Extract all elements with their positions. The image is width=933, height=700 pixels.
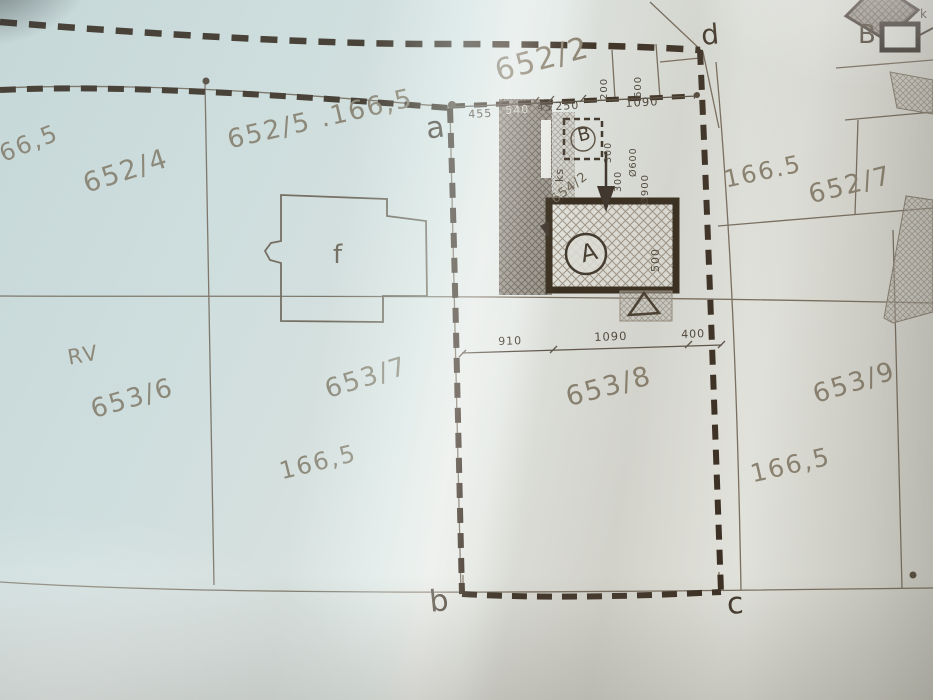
dim-1090-top: 1090 <box>625 96 659 109</box>
legend-b-box <box>882 24 918 50</box>
road-boundary-dashed <box>0 22 700 108</box>
dim-300-b: 300 <box>614 171 624 192</box>
d-connector <box>660 58 700 62</box>
dim-910: 910 <box>498 335 522 347</box>
annotation-ks: ks <box>554 168 565 182</box>
dim-600-dia: Ø600 <box>629 147 639 177</box>
hatch-parallelogram-small <box>890 72 933 114</box>
dim-540: 540 <box>505 104 530 116</box>
topright-line-1 <box>836 60 933 68</box>
dim-455: 455 <box>468 108 493 120</box>
corner-label-a: a <box>424 112 448 145</box>
dim-200: 200 <box>600 78 610 100</box>
dim-500: 500 <box>650 248 661 272</box>
dim-45: 45 <box>537 102 553 113</box>
parcel-bottom-dashed <box>462 592 721 597</box>
d-vertical-1 <box>612 50 615 99</box>
bottom-horizontal-line <box>0 582 933 592</box>
plan-scene: 166,5 652/4 652/5 .166,5 652/2 166.5 652… <box>0 0 933 700</box>
cadastral-plan-photo: 166,5 652/4 652/5 .166,5 652/2 166.5 652… <box>0 0 933 700</box>
mid-horizontal-line <box>0 296 933 303</box>
road-top-dashed <box>0 22 700 50</box>
corner-label-d: d <box>700 20 722 50</box>
legend-b-label: B <box>858 22 876 48</box>
building-f-label: f <box>333 242 344 268</box>
dim-1090-mid: 1090 <box>594 331 628 344</box>
plan-drawing <box>0 0 933 700</box>
dim-300-a: 300 <box>604 142 614 163</box>
parcel-right-dashed <box>700 50 721 592</box>
annotation-rv: RV <box>66 342 101 368</box>
dim-900-dia: Ø900 <box>641 174 651 205</box>
d-vertical-2 <box>656 44 660 98</box>
hatch-parallelogram-large <box>884 196 933 323</box>
left-vertical-line <box>205 82 214 585</box>
corner-label-c: c <box>726 589 747 620</box>
building-f-outline <box>265 195 427 322</box>
dim-250: 250 <box>555 100 580 112</box>
legend-k-label: k <box>920 8 927 20</box>
dim-400: 400 <box>681 328 705 340</box>
topright-line-2 <box>845 112 933 120</box>
dim-600: 600 <box>634 76 644 98</box>
band-white-slot <box>541 120 551 178</box>
corner-label-b: b <box>428 586 452 618</box>
